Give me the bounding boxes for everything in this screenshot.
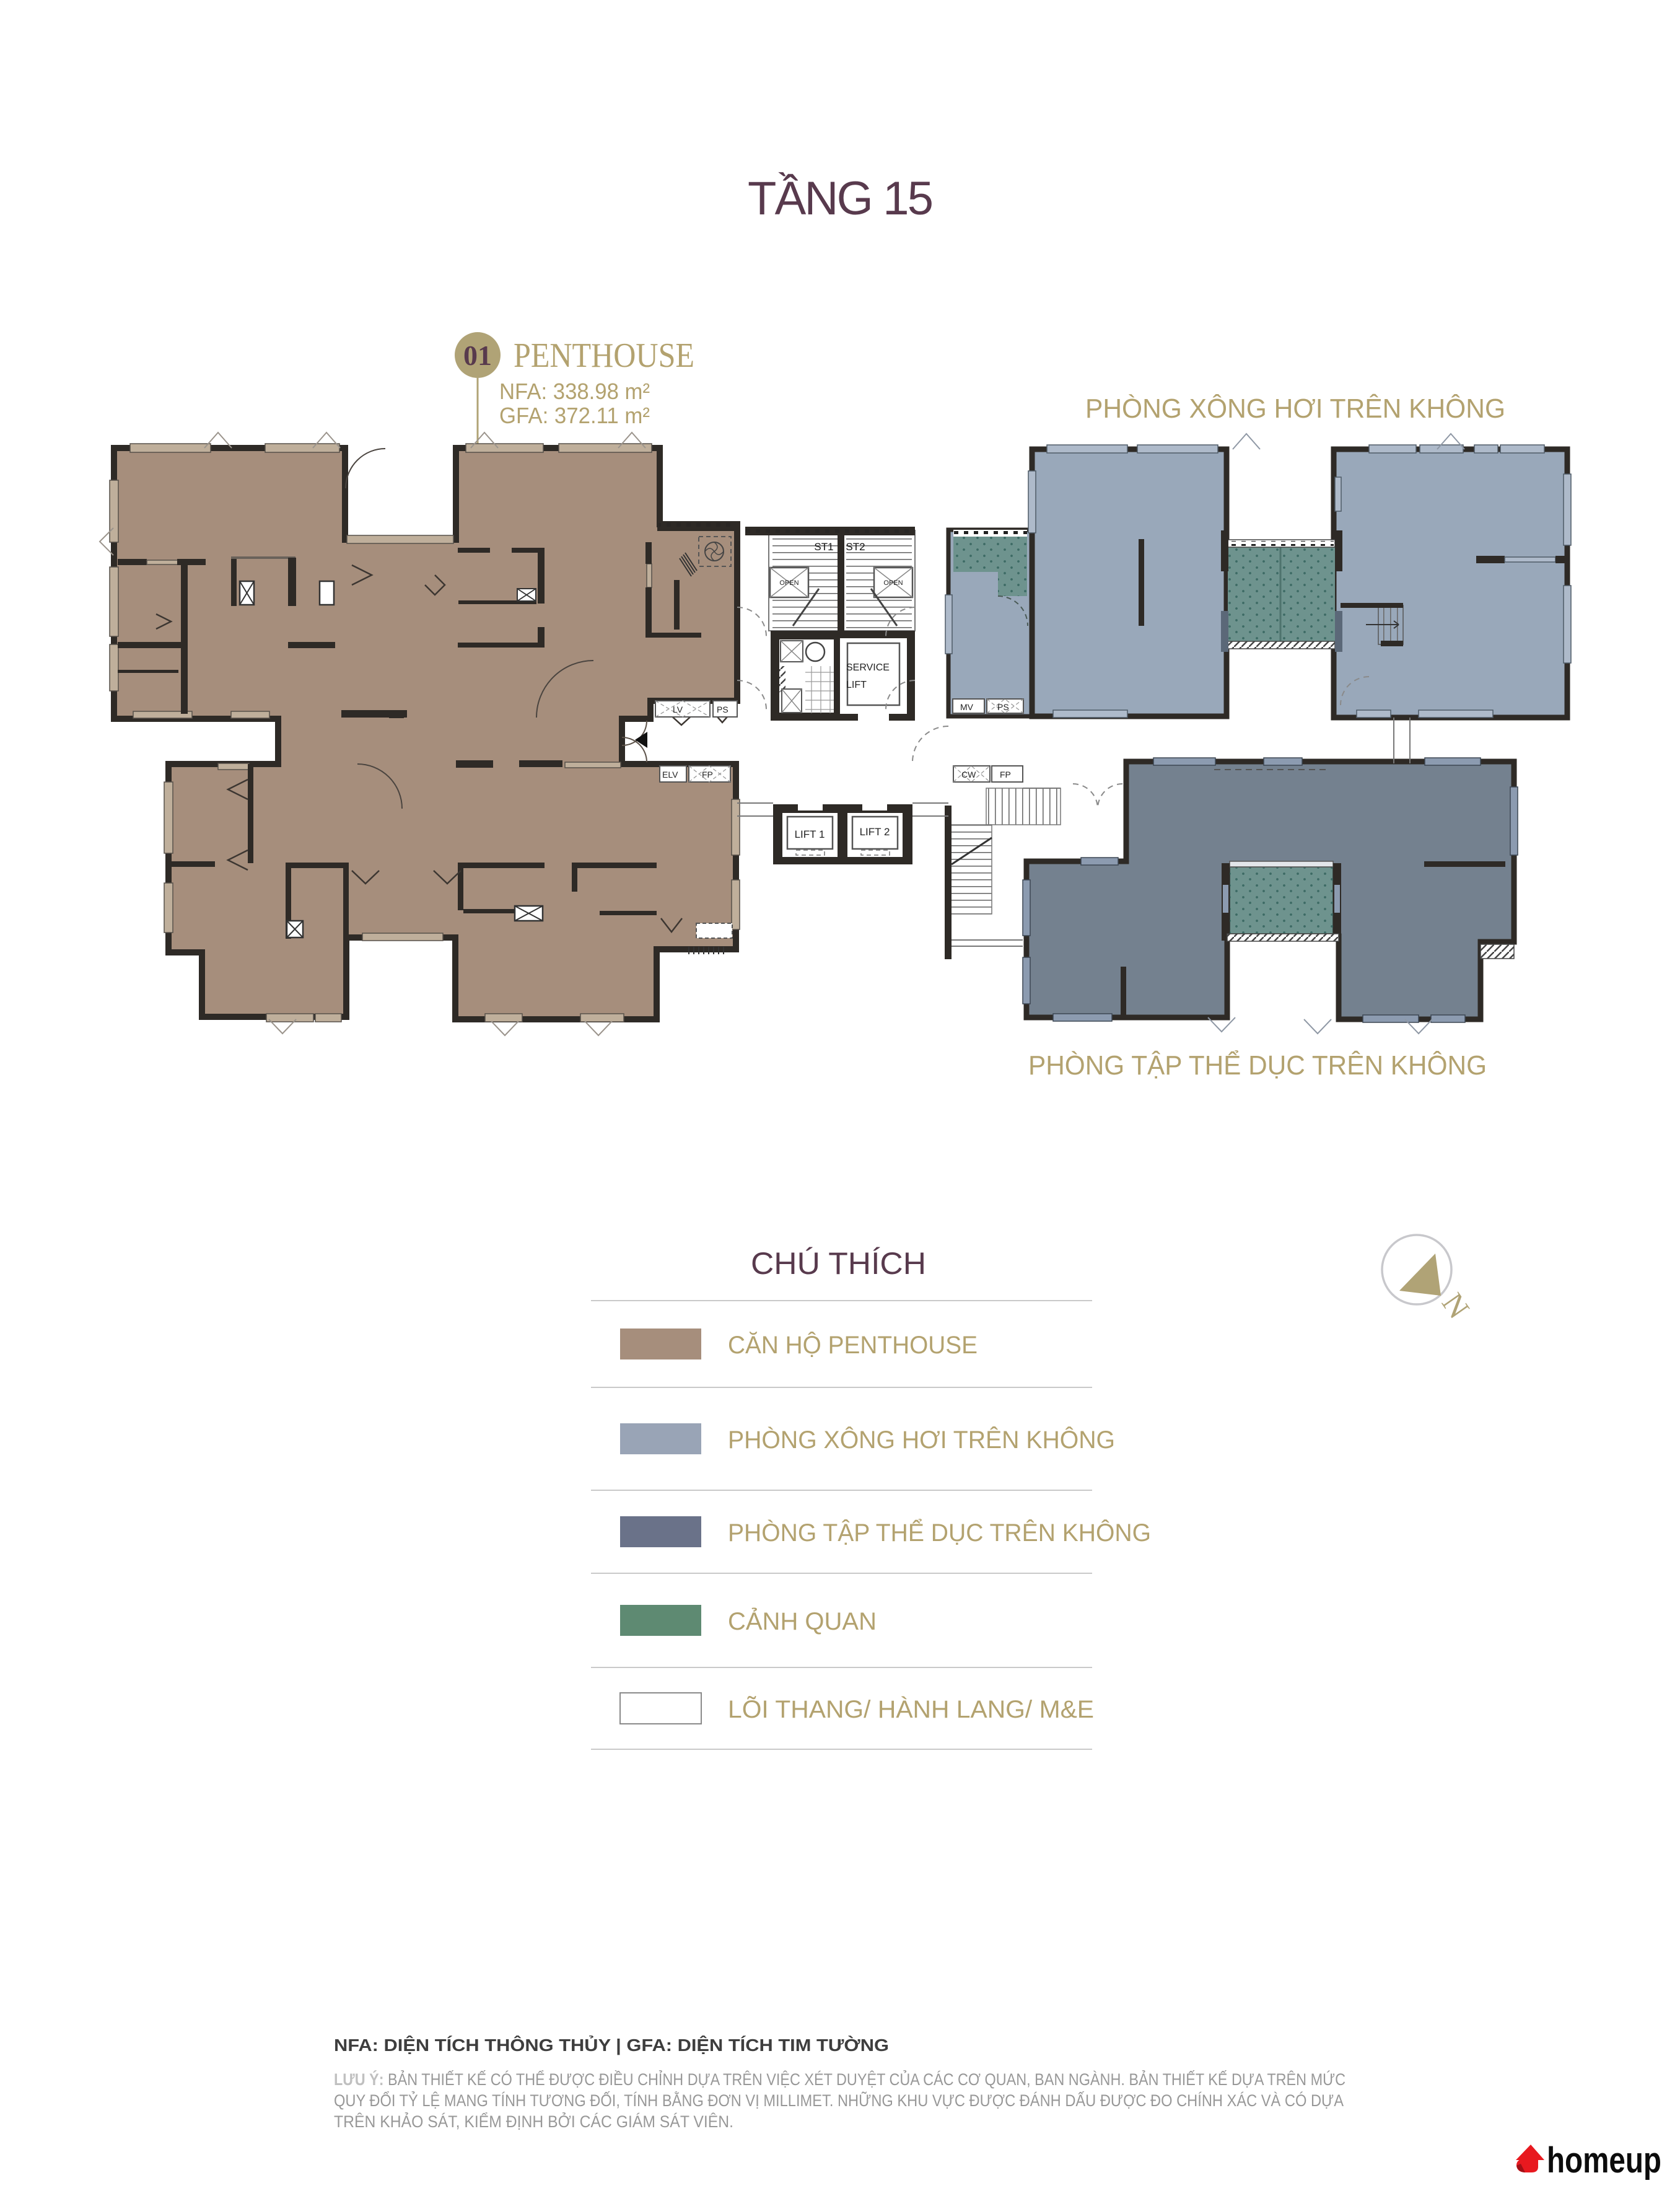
svg-text:TẦNG 15: TẦNG 15 — [748, 172, 934, 225]
svg-text:QUY ĐỔI TỶ LỆ MANG TÍNH TƯƠNG: QUY ĐỔI TỶ LỆ MANG TÍNH TƯƠNG ĐỐI, TÍNH … — [334, 2090, 1344, 2110]
svg-text:NFA: DIỆN TÍCH THÔNG THỦY | GF: NFA: DIỆN TÍCH THÔNG THỦY | GFA: DIỆN TÍ… — [334, 2035, 889, 2055]
svg-text:ST1: ST1 — [814, 541, 833, 553]
svg-text:CW: CW — [961, 770, 976, 780]
svg-text:homeup: homeup — [1547, 2140, 1661, 2181]
svg-text:LIFT 1: LIFT 1 — [795, 828, 825, 840]
svg-text:OPEN: OPEN — [779, 579, 798, 587]
svg-text:TRÊN KHẢO SÁT, KIỂM ĐỊNH BỞI C: TRÊN KHẢO SÁT, KIỂM ĐỊNH BỞI CÁC GIÁM SÁ… — [334, 2111, 733, 2131]
svg-text:PHÒNG TẬP THỂ DỤC TRÊN KHÔNG: PHÒNG TẬP THỂ DỤC TRÊN KHÔNG — [728, 1517, 1151, 1547]
svg-text:ELV: ELV — [662, 770, 678, 780]
svg-text:SERVICE: SERVICE — [846, 662, 890, 673]
svg-text:CĂN HỘ PENTHOUSE: CĂN HỘ PENTHOUSE — [728, 1331, 978, 1359]
svg-text:LIFT 2: LIFT 2 — [860, 826, 890, 838]
svg-text:OPEN: OPEN — [883, 579, 903, 587]
svg-text:CẢNH QUAN: CẢNH QUAN — [728, 1607, 877, 1635]
svg-text:NFA: 338.98 m²: NFA: 338.98 m² — [499, 379, 650, 404]
svg-text:PHÒNG TẬP THỂ DỤC TRÊN KHÔNG: PHÒNG TẬP THỂ DỤC TRÊN KHÔNG — [1028, 1049, 1487, 1081]
svg-text:LÕI THANG/ HÀNH LANG/ M&E: LÕI THANG/ HÀNH LANG/ M&E — [728, 1695, 1094, 1723]
svg-text:ST2: ST2 — [846, 541, 865, 553]
svg-text:PHÒNG XÔNG HƠI TRÊN KHÔNG: PHÒNG XÔNG HƠI TRÊN KHÔNG — [1085, 393, 1505, 424]
svg-text:01: 01 — [463, 340, 492, 371]
svg-text:PENTHOUSE: PENTHOUSE — [514, 336, 694, 375]
svg-text:LV: LV — [673, 705, 683, 714]
svg-text:CHÚ THÍCH: CHÚ THÍCH — [751, 1246, 926, 1281]
svg-text:LƯU Ý: BẢN THIẾT KẾ CÓ THỂ ĐƯỢ: LƯU Ý: BẢN THIẾT KẾ CÓ THỂ ĐƯỢC ĐIỀU CHỈ… — [334, 2069, 1345, 2089]
svg-text:MV: MV — [960, 702, 974, 712]
svg-text:PS: PS — [997, 702, 1009, 712]
svg-text:FP: FP — [702, 770, 713, 780]
svg-text:FP: FP — [1000, 770, 1011, 780]
svg-text:PS: PS — [717, 705, 728, 714]
svg-text:GFA: 372.11 m²: GFA: 372.11 m² — [499, 403, 650, 428]
svg-text:LIFT: LIFT — [846, 680, 867, 690]
svg-text:PHÒNG XÔNG HƠI TRÊN KHÔNG: PHÒNG XÔNG HƠI TRÊN KHÔNG — [728, 1426, 1115, 1454]
